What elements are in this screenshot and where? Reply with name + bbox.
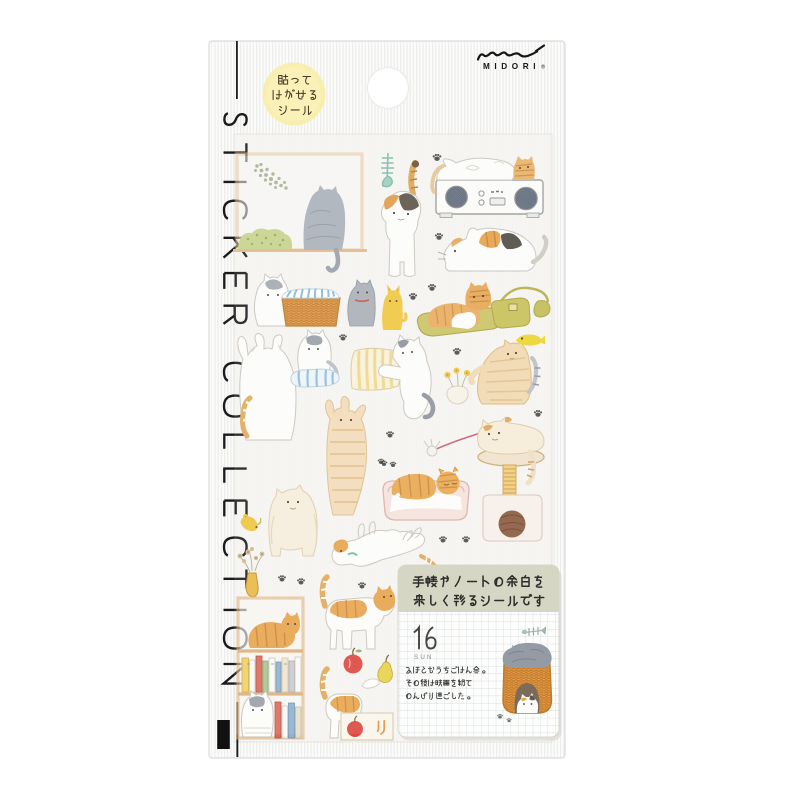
svg-text:®: ® [541, 64, 545, 71]
svg-text:MIDORI: MIDORI [483, 62, 540, 71]
svg-text:SUN: SUN [414, 654, 434, 661]
